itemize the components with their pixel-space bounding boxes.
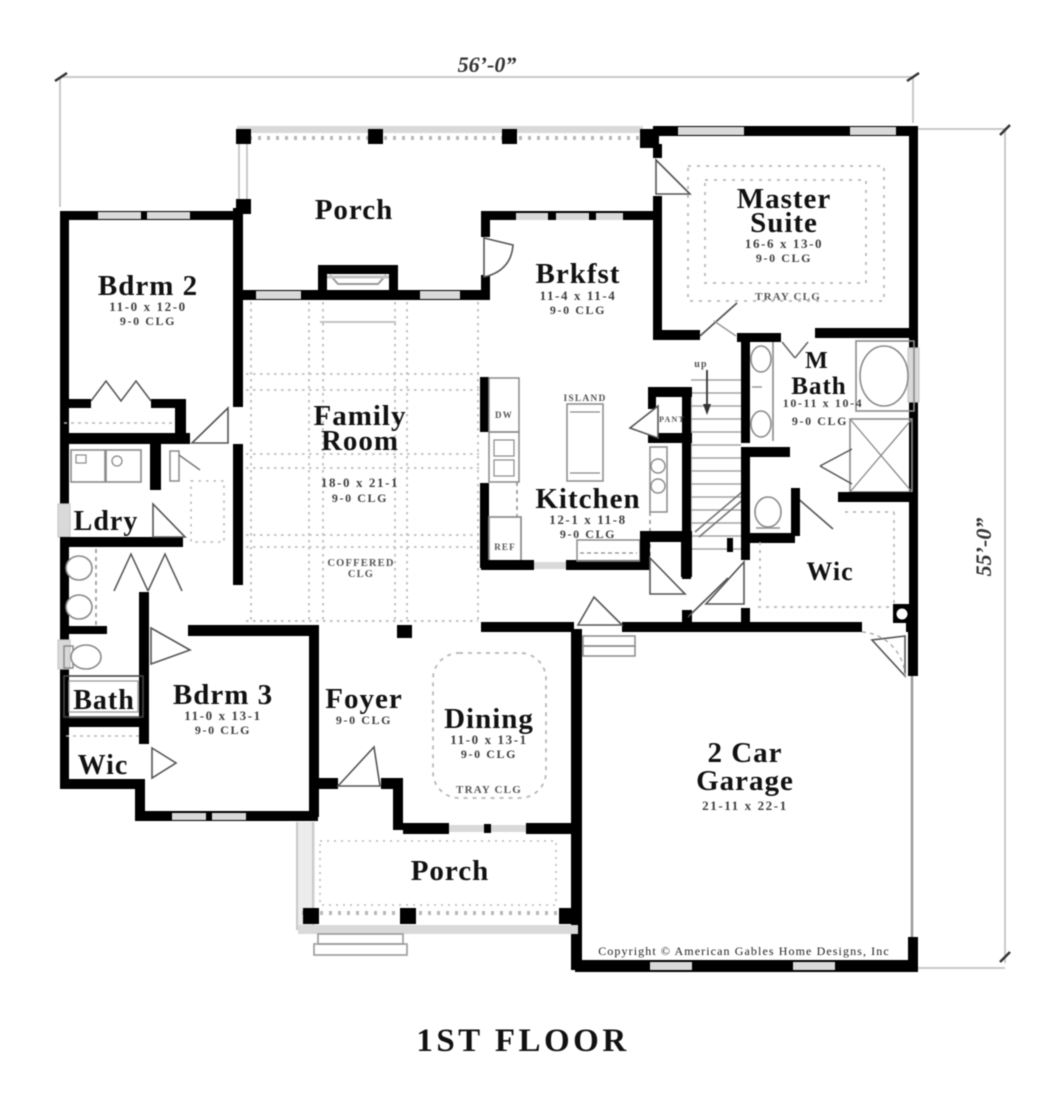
svg-text:COFFERED: COFFERED xyxy=(327,558,394,569)
svg-text:9-0 CLG: 9-0 CLG xyxy=(756,251,812,265)
svg-text:Foyer: Foyer xyxy=(325,683,402,715)
svg-text:Wic: Wic xyxy=(78,750,129,781)
svg-text:1ST FLOOR: 1ST FLOOR xyxy=(416,1023,629,1059)
svg-text:12-1 x 11-8: 12-1 x 11-8 xyxy=(549,512,627,527)
svg-text:56’-0”: 56’-0” xyxy=(458,52,517,77)
svg-text:Garage: Garage xyxy=(696,765,794,797)
svg-text:Brkfst: Brkfst xyxy=(536,258,621,290)
svg-text:9-0 CLG: 9-0 CLG xyxy=(195,723,251,737)
svg-text:9-0 CLG: 9-0 CLG xyxy=(336,713,392,727)
svg-text:Wic: Wic xyxy=(806,557,853,586)
svg-text:9-0 CLG: 9-0 CLG xyxy=(332,491,388,505)
svg-text:10-11 x 10-4: 10-11 x 10-4 xyxy=(783,396,864,410)
svg-text:REF: REF xyxy=(494,542,516,552)
svg-text:11-0 x 13-1: 11-0 x 13-1 xyxy=(450,732,528,747)
svg-text:Ldry: Ldry xyxy=(74,506,139,537)
svg-text:Porch: Porch xyxy=(411,855,490,887)
svg-text:9-0 CLG: 9-0 CLG xyxy=(792,414,848,428)
svg-text:Bdrm 3: Bdrm 3 xyxy=(173,679,273,711)
svg-text:Copyright © American Gables Ho: Copyright © American Gables Home Designs… xyxy=(598,944,890,958)
svg-text:9-0 CLG: 9-0 CLG xyxy=(550,303,606,317)
svg-text:up: up xyxy=(694,359,708,370)
svg-text:Porch: Porch xyxy=(315,194,394,226)
svg-text:55’-0”: 55’-0” xyxy=(971,518,996,577)
svg-text:11-0 x 12-0: 11-0 x 12-0 xyxy=(109,299,187,314)
svg-text:CLG: CLG xyxy=(348,569,374,580)
svg-text:9-0 CLG: 9-0 CLG xyxy=(120,314,176,328)
svg-text:ISLAND: ISLAND xyxy=(563,394,606,404)
svg-text:Dining: Dining xyxy=(444,703,534,735)
svg-text:TRAY CLG: TRAY CLG xyxy=(456,784,522,796)
svg-text:21-11 x 22-1: 21-11 x 22-1 xyxy=(702,798,788,813)
svg-text:DW: DW xyxy=(495,410,513,420)
svg-text:Bath: Bath xyxy=(73,685,135,716)
svg-text:Kitchen: Kitchen xyxy=(535,483,640,515)
svg-text:Suite: Suite xyxy=(750,207,818,239)
svg-text:Room: Room xyxy=(321,425,399,457)
svg-text:Bdrm 2: Bdrm 2 xyxy=(98,270,198,302)
svg-text:16-6 x 13-0: 16-6 x 13-0 xyxy=(745,236,823,251)
svg-text:M: M xyxy=(805,348,829,374)
svg-text:9-0 CLG: 9-0 CLG xyxy=(560,527,616,541)
svg-text:11-0 x 13-1: 11-0 x 13-1 xyxy=(184,708,262,723)
svg-text:11-4 x 11-4: 11-4 x 11-4 xyxy=(540,288,617,303)
svg-text:9-0 CLG: 9-0 CLG xyxy=(461,747,517,761)
svg-text:PANT: PANT xyxy=(659,415,685,424)
svg-text:18-0 x 21-1: 18-0 x 21-1 xyxy=(321,475,399,490)
